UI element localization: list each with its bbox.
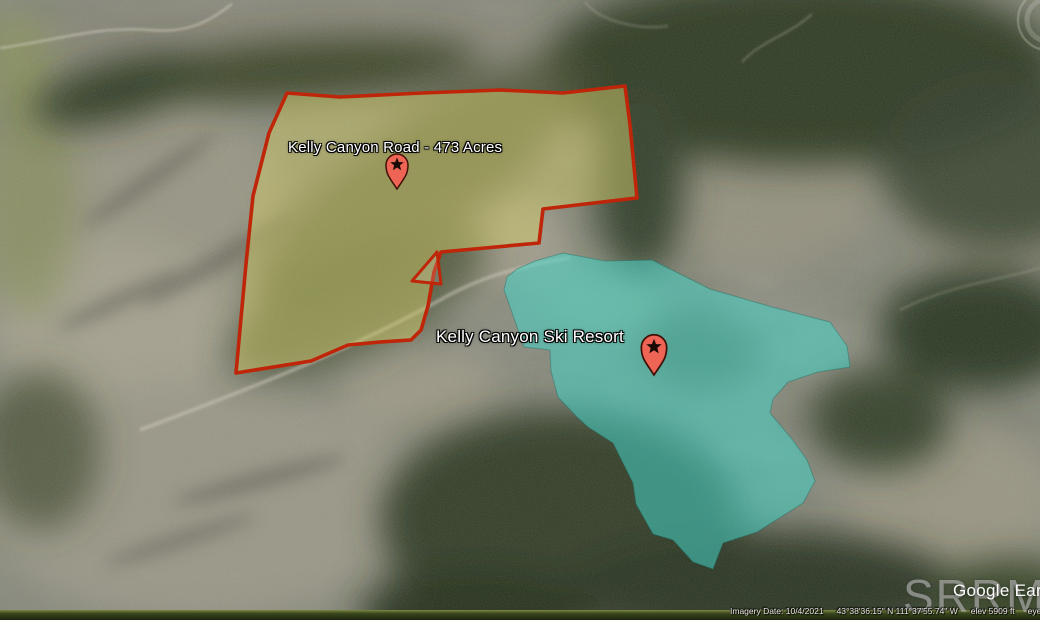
satellite-map[interactable] <box>0 0 1040 620</box>
imagery-date: Imagery Date: 10/4/2021 <box>730 606 824 616</box>
status-bar: Imagery Date: 10/4/2021 43°38'36.15" N 1… <box>730 606 1040 616</box>
coordinates: 43°38'36.15" N 111°37'55.74" W <box>837 606 958 616</box>
eye-altitude: eye alt 14374 ft <box>1028 606 1040 616</box>
placemark-label-kelly-canyon-ski-resort[interactable]: Kelly Canyon Ski Resort <box>436 327 624 347</box>
google-earth-logo: Google Earth <box>953 581 1040 601</box>
elevation: elev 5909 ft <box>971 606 1015 616</box>
google-earth-viewport: Kelly Canyon Road - 473 Acres Kelly Cany… <box>0 0 1040 620</box>
placemark-label-kelly-canyon-road[interactable]: Kelly Canyon Road - 473 Acres <box>288 139 502 156</box>
